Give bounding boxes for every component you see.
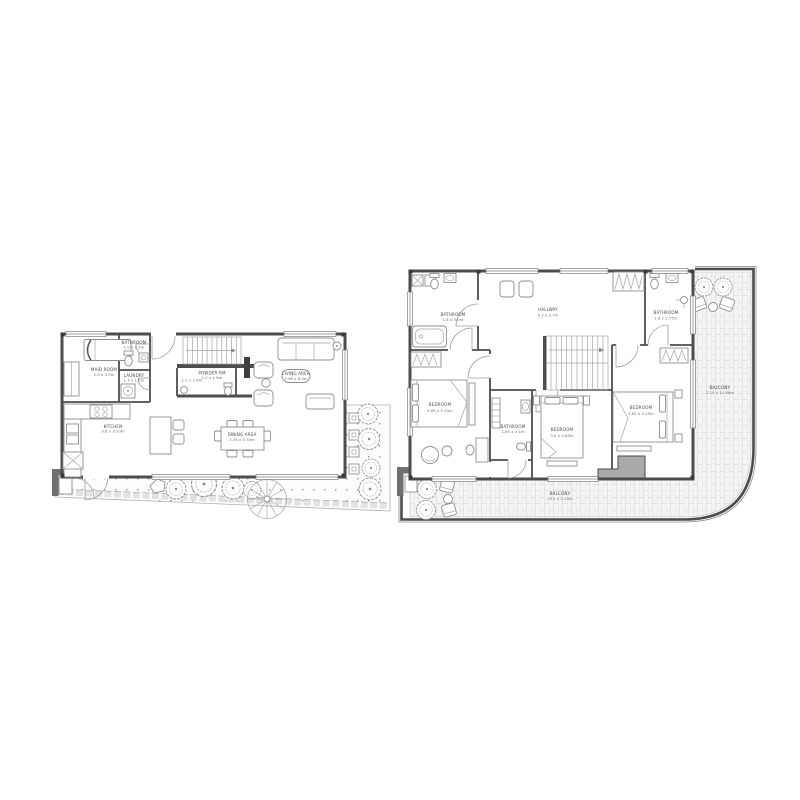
bedroom-left-name: BEDROOM <box>429 402 452 407</box>
laundry-dims: 1.7 x 1.0m <box>124 379 145 383</box>
bathroom-left-name: BATHROOM <box>441 312 466 317</box>
balcony-right-name: BALCONY <box>710 385 731 390</box>
bedroom-right-name: BEDROOM <box>630 405 653 410</box>
bathroom-right-dims: 1.8 x 2.75m <box>654 317 678 321</box>
bedroom-right-wardrobe <box>660 348 688 363</box>
bedroom-mid-dims: 3.5 x 4.65m <box>550 434 574 438</box>
hall-closet <box>613 272 644 291</box>
laundry-name: LAUNDRY <box>124 373 145 378</box>
living-area-dims: 5.96 x 6.5m <box>284 377 308 381</box>
bathroom-dims: 1.0 x 1.5m <box>124 346 145 350</box>
living-area-name: LIVING AREA <box>282 371 310 376</box>
maid-room-name: MAID ROOM <box>91 367 117 372</box>
floor-plan-page: MAID ROOM 2.0 x 3.0m BATHROOM 1.0 x 1.5m… <box>0 0 800 800</box>
bedroom-right-dims: 3.65 x 5.15m <box>628 412 654 416</box>
floor-plans-canvas: MAID ROOM 2.0 x 3.0m BATHROOM 1.0 x 1.5m… <box>0 0 800 800</box>
bathroom-left-dims: 1.8 x 3.0m <box>443 318 464 322</box>
dining-area-dims: 3.35 x 3.30m <box>229 438 255 442</box>
balcony-bottom-dims: 13.2 x 2.15m <box>547 497 573 501</box>
bathroom-right-name: BATHROOM <box>654 310 679 315</box>
floor2-plan: BATHROOM 1.8 x 3.0m HALLWAY 5.3 x 2.7m B… <box>397 267 756 523</box>
bedroom-left-dims: 5.65 x 5.15m <box>427 409 453 413</box>
hallway-dims: 5.3 x 2.7m <box>538 314 559 318</box>
hallway-name: HALLWAY <box>538 307 558 312</box>
floor1-plan: MAID ROOM 2.0 x 3.0m BATHROOM 1.0 x 1.5m… <box>52 332 390 519</box>
store-dims: 1.1 x 1.6m <box>182 379 203 383</box>
bathroom-name: BATHROOM <box>122 340 147 345</box>
shower-icon <box>681 297 688 304</box>
spiral-staircase <box>248 480 287 519</box>
bedroom-mid-name: BEDROOM <box>551 427 574 432</box>
bedroom-left-wardrobe <box>411 352 441 367</box>
maid-room-dims: 2.0 x 3.0m <box>94 373 115 377</box>
dining-area-name: DINING AREA <box>228 432 257 437</box>
powder-room-name: POWDER RM <box>198 371 226 376</box>
tv-console <box>244 357 250 378</box>
kitchen-dims: 3.8 x 3.33m <box>101 430 125 434</box>
kitchen-name: KITCHEN <box>104 424 123 429</box>
bedroom-right-furniture <box>613 390 682 451</box>
balcony-right-dims: 2.15 x 11.68m <box>706 391 734 395</box>
laundry-fixtures <box>121 384 135 398</box>
bathroom-mid-name: BATHROOM <box>501 424 526 429</box>
bathroom-mid-dims: 1.65 x 3.1m <box>501 430 525 434</box>
balcony-bottom-name: BALCONY <box>550 491 571 496</box>
powder-room-dims: 1.2 x 1.6m <box>202 376 223 380</box>
